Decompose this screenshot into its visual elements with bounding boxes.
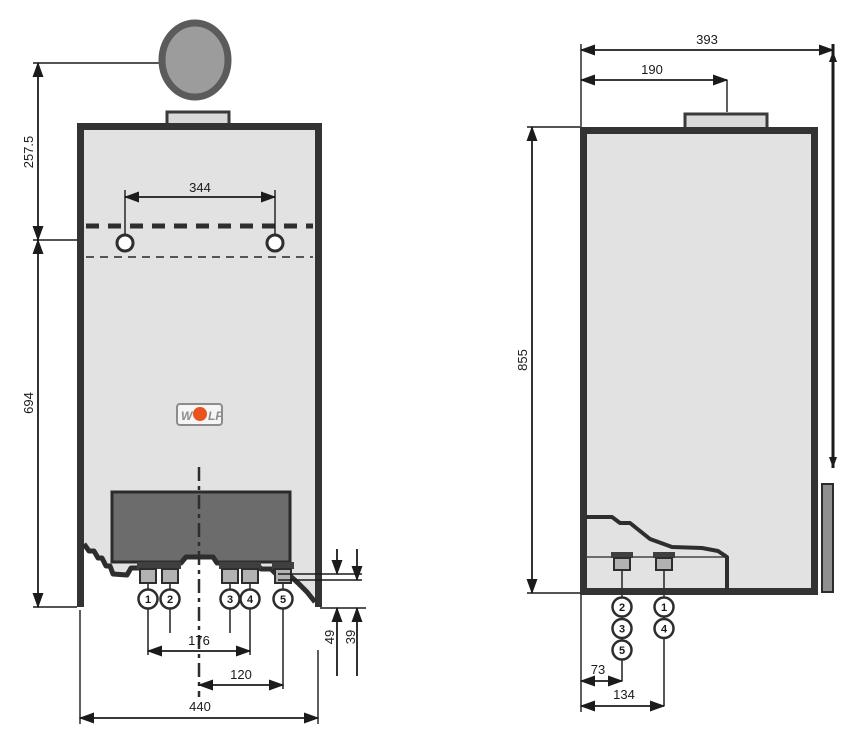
- dim-label-190: 190: [641, 62, 663, 77]
- mounting-hole-right: [267, 235, 283, 251]
- dim-label-694: 694: [21, 392, 36, 414]
- stub: [140, 569, 156, 583]
- logo-text-left: W: [181, 409, 194, 423]
- connection-number-2-side: 2: [619, 602, 625, 614]
- boiler-dimension-drawing: 257.5 694 344 W LF: [0, 0, 864, 752]
- dim-label-120: 120: [230, 667, 252, 682]
- mounting-hole-left: [117, 235, 133, 251]
- dim-label-393: 393: [696, 32, 718, 47]
- drawing-svg: 257.5 694 344 W LF: [0, 0, 864, 752]
- dim-label-344: 344: [189, 180, 211, 195]
- stub-cap: [137, 562, 159, 569]
- connection-number-5-side: 5: [619, 645, 625, 657]
- stub: [222, 569, 238, 583]
- dim-label-49: 49: [322, 630, 337, 644]
- dim-label-440: 440: [189, 699, 211, 714]
- stub: [614, 558, 630, 570]
- stub: [275, 569, 291, 583]
- connection-number-3: 3: [227, 594, 233, 606]
- stub: [242, 569, 258, 583]
- stub-cap: [219, 562, 241, 569]
- stub: [162, 569, 178, 583]
- dim-label-176: 176: [188, 633, 210, 648]
- connection-number-1: 1: [145, 594, 151, 606]
- wolf-logo: W LF: [177, 404, 223, 425]
- logo-dot-icon: [193, 407, 207, 421]
- stub-cap: [159, 562, 181, 569]
- rear-ref-arrow-up: [829, 51, 837, 62]
- front-view: 257.5 694 344 W LF: [21, 23, 366, 724]
- flue-pipe: [162, 23, 228, 97]
- connection-number-4-side: 4: [661, 624, 668, 636]
- logo-text-right: LF: [208, 409, 223, 423]
- dim-label-855: 855: [515, 349, 530, 371]
- connection-number-3-side: 3: [619, 624, 625, 636]
- connection-number-5: 5: [280, 594, 286, 606]
- stub-cap: [239, 562, 261, 569]
- mounting-rail: [822, 484, 833, 592]
- stub-cap: [272, 562, 294, 569]
- side-view: 393 190 855: [515, 32, 837, 712]
- dim-label-257-5: 257.5: [21, 136, 36, 169]
- rear-ref-arrow-down: [829, 457, 837, 468]
- connection-number-2: 2: [167, 594, 173, 606]
- connection-number-4: 4: [247, 594, 254, 606]
- connection-number-1-side: 1: [661, 602, 667, 614]
- dim-label-39: 39: [343, 630, 358, 644]
- stub: [656, 558, 672, 570]
- dim-label-73: 73: [591, 662, 605, 677]
- dim-label-134: 134: [613, 687, 635, 702]
- control-panel: [112, 492, 290, 562]
